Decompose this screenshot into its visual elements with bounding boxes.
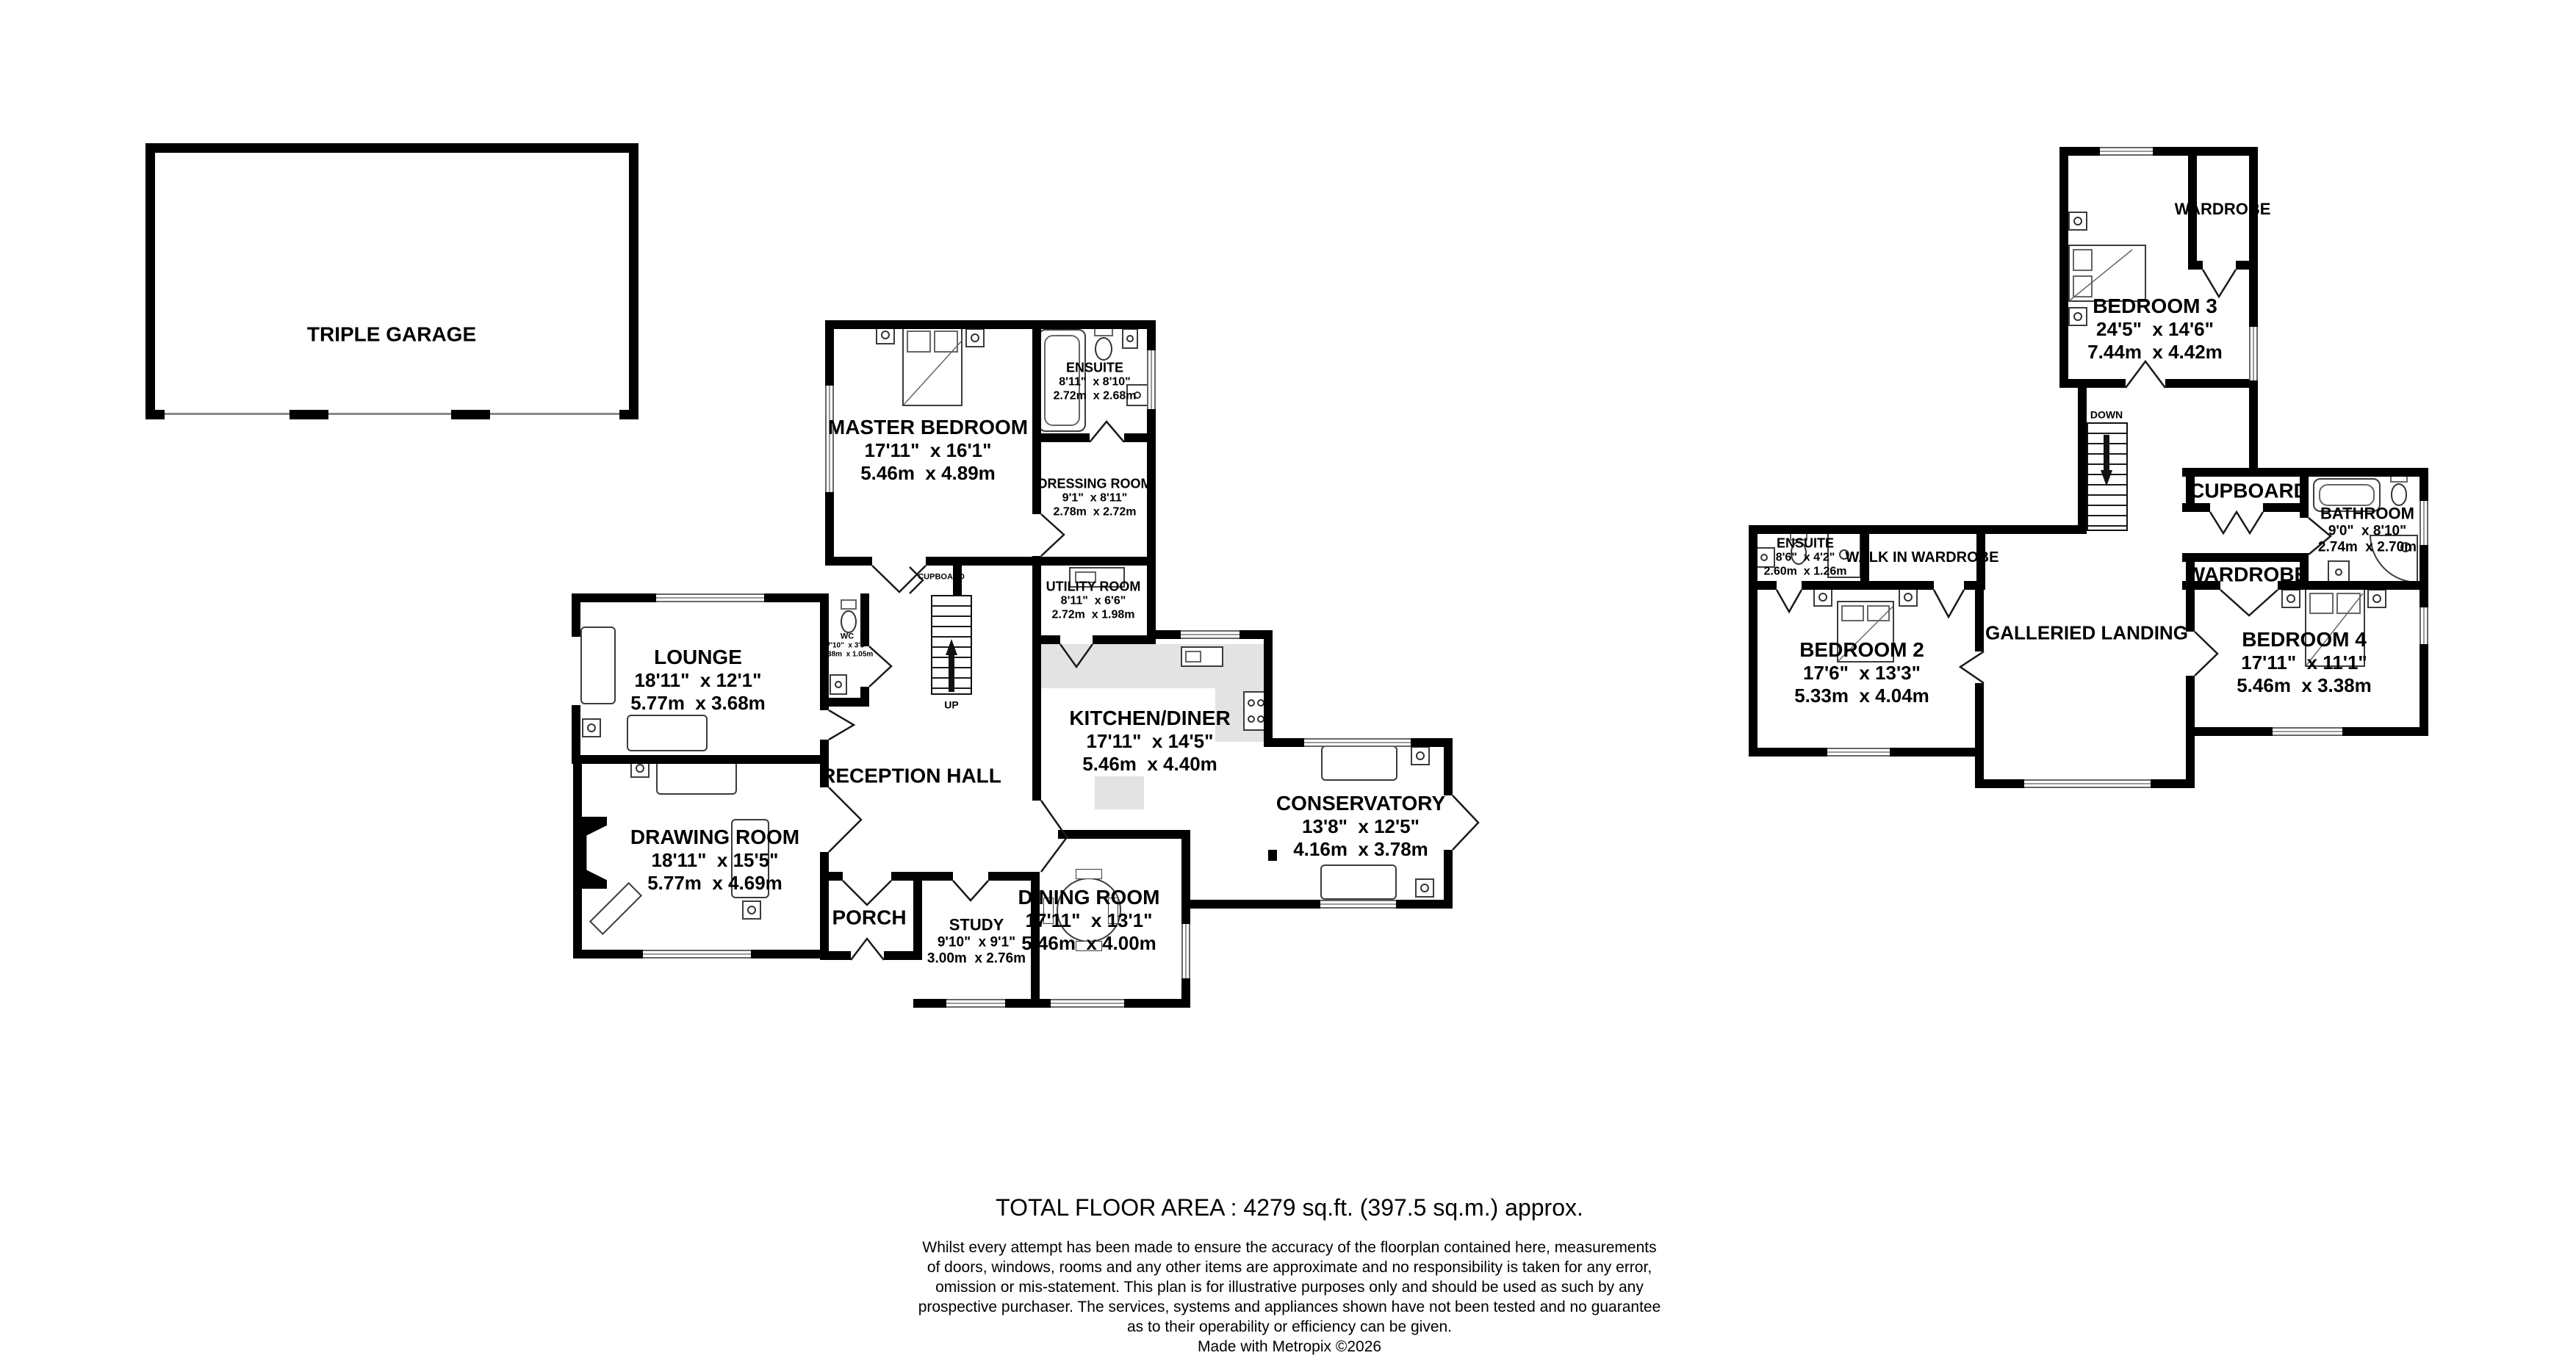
pillow bbox=[2309, 593, 2334, 614]
wall bbox=[2236, 261, 2258, 270]
fixture-circle bbox=[1818, 593, 1827, 602]
wall bbox=[145, 143, 155, 419]
wall bbox=[2249, 380, 2258, 468]
sofa-icon bbox=[580, 627, 616, 704]
room-label-dining-room: DINING ROOM 17'11" x 13'1" 5.46m x 4.00m bbox=[1018, 885, 1160, 954]
fixture-circle bbox=[747, 906, 756, 914]
wall bbox=[1181, 839, 1190, 924]
door-swing-mark bbox=[1934, 590, 1964, 617]
window bbox=[1051, 999, 1124, 1008]
door-swing-mark bbox=[829, 787, 861, 852]
disclaimer-line: as to their operability or efficiency ca… bbox=[834, 1317, 1745, 1337]
wall bbox=[820, 852, 829, 960]
wall bbox=[1749, 581, 1777, 590]
door-swing-mark bbox=[851, 939, 884, 960]
door-swing-mark bbox=[1960, 651, 1984, 683]
credit: Made with Metropix ©2026 bbox=[834, 1338, 1745, 1356]
wall bbox=[289, 410, 328, 419]
room-label-triple-garage: TRIPLE GARAGE bbox=[307, 322, 476, 346]
door-swing-mark bbox=[829, 710, 854, 740]
wall bbox=[764, 593, 829, 602]
garage-door-line bbox=[165, 413, 289, 415]
wall bbox=[2186, 676, 2195, 736]
door-swing-mark bbox=[2210, 512, 2263, 533]
wall bbox=[1190, 900, 1273, 909]
light-fixture-icon bbox=[1813, 588, 1832, 607]
window bbox=[2249, 327, 2258, 380]
garage-door-line bbox=[328, 413, 451, 415]
wall bbox=[1058, 830, 1190, 839]
wall bbox=[913, 999, 946, 1008]
wall bbox=[825, 320, 1156, 329]
wall bbox=[1975, 683, 1984, 788]
wall bbox=[1031, 999, 1051, 1008]
wall bbox=[145, 410, 165, 419]
wall bbox=[2153, 147, 2258, 156]
sink-bowl bbox=[1185, 651, 1201, 663]
fixture-circle bbox=[2372, 594, 2381, 603]
sink-icon bbox=[1122, 328, 1138, 349]
wall bbox=[829, 698, 869, 707]
window bbox=[1181, 924, 1190, 978]
pillow bbox=[2073, 249, 2093, 271]
wall bbox=[2059, 147, 2068, 388]
door-swing-mark bbox=[2220, 590, 2278, 615]
light-fixture-icon bbox=[582, 718, 601, 737]
room-label-kitchen-diner: KITCHEN/DINER 17'11" x 14'5" 5.46m x 4.4… bbox=[1069, 706, 1230, 775]
door-swing-mark bbox=[1041, 514, 1064, 556]
wall bbox=[825, 320, 834, 386]
toilet-part bbox=[841, 610, 856, 633]
wall bbox=[572, 755, 829, 764]
disclaimer: Whilst every attempt has been made to en… bbox=[834, 1238, 1745, 1337]
sink-bowl bbox=[835, 681, 842, 688]
door-swing-mark bbox=[1453, 795, 1478, 850]
wall bbox=[1147, 566, 1156, 639]
wall bbox=[2420, 468, 2428, 501]
room-label-porch: PORCH bbox=[832, 905, 906, 929]
wall bbox=[2182, 503, 2210, 512]
wall bbox=[1124, 999, 1190, 1008]
fireplace-icon bbox=[573, 817, 607, 889]
wall bbox=[2186, 727, 2273, 736]
disclaimer-line: Whilst every attempt has been made to en… bbox=[834, 1238, 1745, 1257]
room-label-galleried-landing: GALLERIED LANDING bbox=[1985, 622, 2188, 645]
toilet-part bbox=[1095, 337, 1112, 361]
light-fixture-icon bbox=[1899, 588, 1918, 607]
wall bbox=[572, 593, 580, 637]
disclaimer-line: of doors, windows, rooms and any other i… bbox=[834, 1257, 1745, 1277]
wall bbox=[1749, 525, 1757, 757]
wall bbox=[820, 951, 851, 960]
fixture-circle bbox=[2073, 312, 2082, 321]
stairs-down-label: DOWN bbox=[2090, 409, 2123, 422]
room-label-bathroom: BATHROOM 9'0" x 8'10" 2.74m x 2.70m bbox=[2318, 505, 2417, 557]
window bbox=[2420, 501, 2428, 545]
sink-icon bbox=[830, 674, 847, 695]
disclaimer-line: prospective purchaser. The services, sys… bbox=[834, 1297, 1745, 1317]
door-swing-mark bbox=[1777, 590, 1802, 612]
fixture-circle bbox=[636, 764, 644, 773]
wall bbox=[825, 492, 834, 566]
room-label-wc: WC 7'10" x 3'5" 2.38m x 1.05m bbox=[821, 632, 874, 660]
wall bbox=[2420, 644, 2428, 736]
room-label-wardrobe3: WARDROBE bbox=[2175, 200, 2271, 219]
window bbox=[2024, 779, 2151, 788]
room-label-bedroom2: BEDROOM 2 17'6" x 13'3" 5.33m x 4.04m bbox=[1794, 638, 1929, 707]
room-label-cupboard-ff: CUPBOARD bbox=[2190, 478, 2309, 502]
room-label-wardrobe4: WARDROBE bbox=[2186, 562, 2308, 586]
kitchen-counter bbox=[1095, 776, 1144, 809]
wall bbox=[1124, 433, 1156, 442]
window bbox=[1147, 350, 1156, 409]
wall bbox=[1975, 590, 1984, 651]
sofa-icon bbox=[1320, 864, 1397, 900]
wall bbox=[1032, 433, 1090, 442]
wall bbox=[2078, 388, 2087, 525]
wall bbox=[573, 950, 643, 959]
pillow bbox=[1841, 605, 1864, 621]
wall bbox=[2188, 261, 2203, 270]
wall bbox=[2165, 379, 2258, 388]
wall bbox=[926, 557, 1156, 566]
fixture-circle bbox=[2073, 217, 2082, 225]
room-label-bedroom3: BEDROOM 3 24'5" x 14'6" 7.44m x 4.42m bbox=[2087, 294, 2223, 363]
wall bbox=[1273, 900, 1320, 909]
wall bbox=[629, 143, 638, 419]
wall bbox=[1147, 630, 1181, 639]
fixture-circle bbox=[881, 331, 890, 339]
room-label-reception-hall: RECEPTION HALL bbox=[821, 763, 1001, 787]
fixture-circle bbox=[1904, 593, 1913, 602]
kitchen-sink-icon bbox=[1181, 646, 1223, 667]
total-floor-area: TOTAL FLOOR AREA : 4279 sq.ft. (397.5 sq… bbox=[834, 1194, 1745, 1221]
wall bbox=[2420, 545, 2428, 607]
fixture-circle bbox=[1416, 751, 1425, 760]
pillow bbox=[2336, 593, 2361, 614]
wall bbox=[2186, 736, 2195, 788]
toilet-icon bbox=[838, 599, 859, 635]
wall bbox=[1749, 525, 2087, 534]
staircase-down bbox=[2087, 422, 2128, 531]
stairs-up-label: UP bbox=[944, 699, 958, 712]
toilet-icon bbox=[2388, 472, 2410, 508]
toilet-part bbox=[841, 599, 857, 610]
light-fixture-icon bbox=[965, 328, 985, 347]
bathtub-inner bbox=[2319, 484, 2375, 506]
wall bbox=[825, 557, 872, 566]
wall bbox=[1032, 635, 1060, 644]
door-swing-mark bbox=[843, 881, 891, 905]
room-label-walk-in-wardrobe: WALK IN WARDROBE bbox=[1846, 549, 1999, 567]
wall bbox=[2182, 553, 2309, 562]
wall bbox=[1890, 748, 1984, 757]
fixture-circle bbox=[971, 333, 979, 342]
wall bbox=[619, 410, 638, 419]
door-swing-mark bbox=[2126, 361, 2165, 388]
room-label-conservatory: CONSERVATORY 13'8" x 12'5" 4.16m x 3.78m bbox=[1276, 791, 1445, 860]
room-label-cupboard-gf: CUPBOARD bbox=[918, 573, 965, 582]
window bbox=[643, 950, 751, 959]
light-fixture-icon bbox=[742, 900, 761, 920]
door-swing-mark bbox=[2195, 632, 2217, 676]
wall bbox=[913, 872, 922, 960]
window bbox=[946, 999, 1005, 1008]
wall bbox=[1032, 556, 1041, 801]
footer: TOTAL FLOOR AREA : 4279 sq.ft. (397.5 sq… bbox=[834, 1194, 1745, 1356]
staircase-up bbox=[931, 595, 972, 695]
wall bbox=[1264, 630, 1273, 747]
sofa-icon bbox=[1321, 746, 1397, 781]
light-fixture-icon bbox=[2068, 212, 2087, 231]
room-label-dressing-room: DRESSING ROOM 9'1" x 8'11" 2.78m x 2.72m bbox=[1037, 477, 1151, 520]
wall bbox=[1749, 748, 1827, 757]
wall bbox=[2249, 147, 2258, 327]
room-label-master-bedroom: MASTER BEDROOM 17'11" x 16'1" 5.46m x 4.… bbox=[828, 415, 1028, 484]
light-fixture-icon bbox=[2367, 589, 2386, 608]
room-label-ensuite-ff: ENSUITE 8'6" x 4'2" 2.60m x 1.26m bbox=[1764, 536, 1847, 580]
toilet-part bbox=[2391, 483, 2408, 506]
wall bbox=[1444, 738, 1453, 795]
pillow bbox=[1867, 605, 1890, 621]
wall bbox=[820, 872, 843, 881]
window bbox=[2273, 727, 2342, 736]
door-swing-mark bbox=[953, 881, 988, 900]
toilet-icon bbox=[1092, 325, 1115, 362]
window bbox=[656, 593, 764, 602]
pillow bbox=[907, 331, 931, 353]
room-label-lounge: LOUNGE 18'11" x 12'1" 5.77m x 3.68m bbox=[630, 645, 766, 714]
fixture-circle bbox=[587, 723, 596, 732]
window bbox=[2100, 147, 2153, 156]
wall bbox=[1976, 779, 2024, 788]
window bbox=[2420, 607, 2428, 644]
disclaimer-line: omission or mis-statement. This plan is … bbox=[834, 1277, 1745, 1297]
garage-door-line bbox=[490, 413, 619, 415]
wall bbox=[572, 593, 656, 602]
chair-icon bbox=[1076, 869, 1102, 879]
light-fixture-icon bbox=[1411, 746, 1430, 765]
fixture-circle bbox=[1420, 884, 1429, 892]
window bbox=[1304, 738, 1411, 747]
sink-bowl bbox=[2335, 568, 2342, 576]
floorplan-page: TRIPLE GARAGE MASTER BEDROOM 17'11" x 16… bbox=[0, 0, 2576, 1361]
door-swing-mark bbox=[1090, 422, 1124, 442]
fixture-circle bbox=[2287, 594, 2295, 603]
wall bbox=[451, 410, 490, 419]
pillow bbox=[934, 331, 958, 353]
room-label-bedroom4: BEDROOM 4 17'11" x 11'1" 5.46m x 3.38m bbox=[2237, 627, 2372, 696]
wall bbox=[891, 872, 953, 881]
wall bbox=[751, 950, 829, 959]
wall bbox=[2342, 727, 2428, 736]
light-fixture-icon bbox=[2281, 589, 2300, 608]
hob-ring bbox=[1248, 715, 1255, 723]
room-label-study: STUDY 9'10" x 9'1" 3.00m x 2.76m bbox=[927, 916, 1026, 968]
window bbox=[1827, 748, 1890, 757]
room-label-utility-room: UTILITY ROOM 8'11" x 6'6" 2.72m x 1.98m bbox=[1046, 580, 1141, 623]
room-label-ensuite-gf: ENSUITE 8'11" x 8'10" 2.72m x 2.68m bbox=[1054, 361, 1137, 404]
light-fixture-icon bbox=[1415, 878, 1434, 898]
window bbox=[1181, 630, 1240, 639]
wall bbox=[1147, 320, 1156, 350]
wall bbox=[1273, 738, 1304, 747]
wall bbox=[145, 143, 638, 153]
door-swing-mark bbox=[2203, 270, 2236, 297]
window bbox=[1320, 900, 1396, 909]
sink-bowl bbox=[1126, 335, 1134, 342]
light-fixture-icon bbox=[2068, 307, 2087, 326]
room-label-drawing-room: DRAWING ROOM 18'11" x 15'5" 5.77m x 4.69… bbox=[630, 825, 799, 894]
sofa-icon bbox=[627, 715, 708, 751]
wall bbox=[2059, 379, 2126, 388]
hob-ring bbox=[1248, 699, 1255, 707]
bed-icon bbox=[902, 325, 963, 406]
